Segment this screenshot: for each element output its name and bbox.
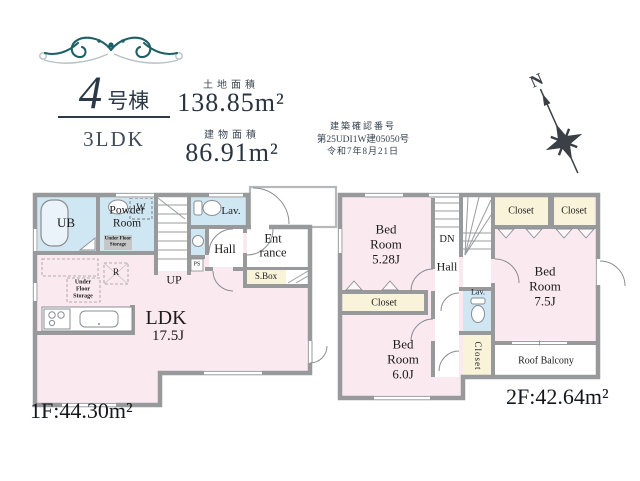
approval-date: 令和7年8月21日: [298, 144, 428, 157]
entrance-label: Ent rance: [259, 232, 286, 260]
floor1-area-label: 1F:44.30m²: [30, 398, 133, 424]
building-suffix: 号棟: [107, 85, 149, 115]
building-number: 4: [79, 66, 103, 120]
toilet-tank-1f: [194, 201, 202, 215]
ldk-label: LDK: [145, 307, 186, 329]
approval-number: 第25UDI1W建05050号: [296, 131, 430, 145]
ufs-ldk-label: Under Floor Storage: [73, 280, 93, 301]
toilet-icon-1f: [203, 201, 221, 216]
building-area-value: 86.91m²: [167, 138, 297, 168]
shoe-box-label: S.Box: [255, 272, 277, 282]
floor2-area-label: 2F:42.64m²: [506, 384, 609, 410]
lav-label-2f: Lav.: [471, 289, 485, 298]
porch: [250, 187, 336, 227]
ldk-size-label: 17.5J: [152, 328, 184, 345]
closet-top2-label: Closet: [561, 206, 587, 217]
building-title: 4 号棟: [56, 66, 172, 120]
bedroom3-label: Bed Room 6.0J: [387, 338, 419, 383]
compass-icon: N: [512, 62, 616, 180]
closet-left-label: Closet: [371, 298, 397, 309]
pipe-space-label: PS: [194, 262, 201, 269]
stove-icon: [44, 309, 70, 329]
bedroom2-label: Bed Room 7.5J: [529, 265, 561, 310]
kitchen-counter-icon: [42, 307, 132, 331]
toilet-icon-2f: [472, 306, 485, 323]
hall-label-1f: Hall: [214, 243, 236, 257]
land-area-value: 138.85m²: [166, 88, 296, 118]
closet-mid-label: Closet: [472, 341, 482, 370]
plan-type: 3LDK: [56, 127, 172, 152]
washer-label: W: [136, 203, 145, 214]
hall-label-2f: Hall: [437, 260, 458, 273]
hall-2f: [435, 195, 459, 377]
svg-text:N: N: [527, 69, 547, 92]
lav-label-1f: Lav.: [221, 205, 240, 217]
ufs-powder-label: Under Floor Storage: [105, 237, 131, 248]
closet-top1-label: Closet: [508, 206, 534, 217]
floorplan-sheet: 4 号棟 3LDK 土地面積 138.85m² 建物面積 86.91m² 建築確…: [0, 0, 640, 481]
stairs-down-label: DN: [439, 234, 454, 246]
basin-icon: [193, 236, 204, 247]
bedroom1-label: Bed Room 5.28J: [370, 223, 402, 268]
stairs-up-label: UP: [166, 273, 181, 286]
toilet-tank-2f: [471, 298, 485, 304]
roof-balcony-label: Roof Balcony: [518, 356, 574, 367]
ub-label: UB: [57, 216, 75, 230]
refrigerator-label: R: [113, 268, 119, 278]
title-underline: [58, 116, 170, 118]
stairs-1f: [158, 195, 187, 271]
